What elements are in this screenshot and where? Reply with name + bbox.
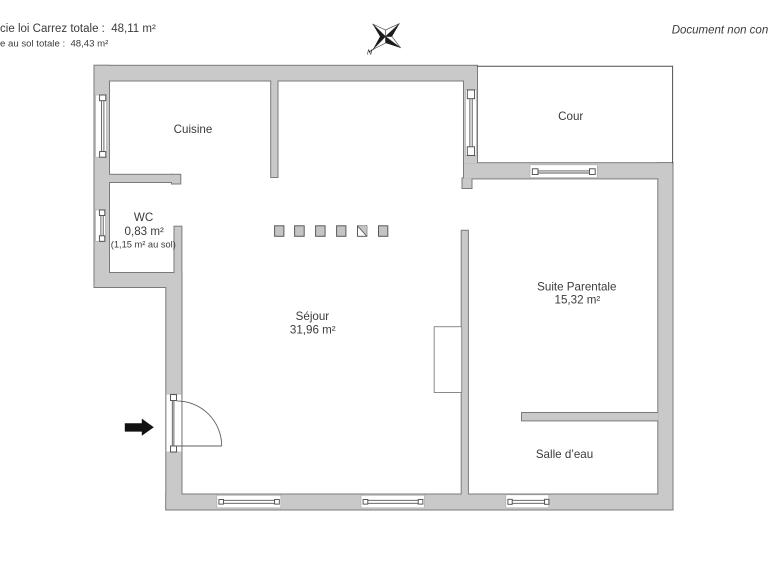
- svg-text:31,96 m²: 31,96 m²: [290, 323, 336, 336]
- svg-text:Séjour: Séjour: [296, 310, 330, 323]
- svg-text:(1,15 m² au sol): (1,15 m² au sol): [111, 240, 176, 250]
- svg-text:15,32 m²: 15,32 m²: [555, 294, 601, 307]
- svg-text:N: N: [367, 50, 373, 57]
- svg-text:0,83 m²: 0,83 m²: [125, 225, 164, 238]
- svg-text:Superficie loi Carrez totale :: Superficie loi Carrez totale : 48,11 m²: [0, 23, 156, 35]
- svg-text:Cour: Cour: [558, 110, 583, 123]
- svg-text:WC: WC: [134, 211, 153, 224]
- svg-text:Surface au sol totale : 48,43: Surface au sol totale : 48,43 m²: [0, 38, 109, 49]
- svg-text:Cuisine: Cuisine: [174, 123, 213, 136]
- svg-text:Document non contractuel: Document non contractuel: [672, 24, 768, 36]
- svg-text:Suite Parentale: Suite Parentale: [537, 280, 616, 293]
- svg-text:Salle d’eau: Salle d’eau: [536, 448, 593, 461]
